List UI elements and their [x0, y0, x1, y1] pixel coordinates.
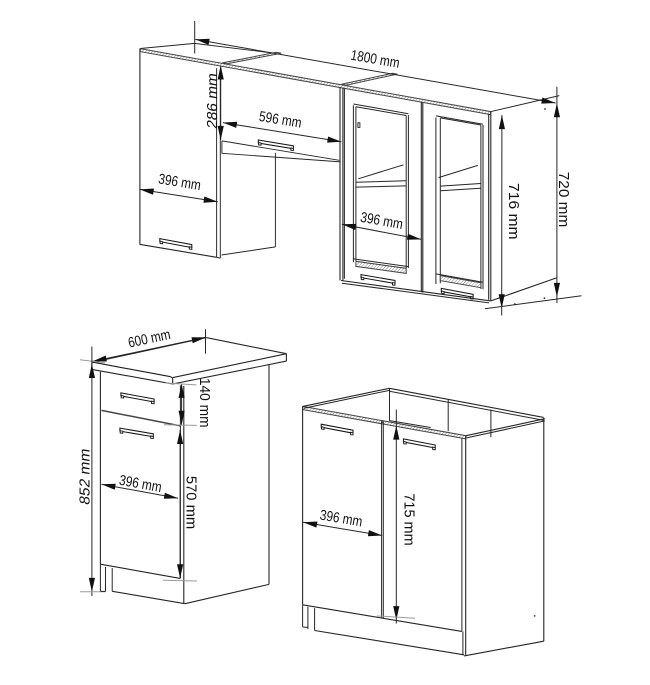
svg-text:720 mm: 720 mm	[555, 172, 571, 228]
svg-text:716 mm: 716 mm	[505, 183, 521, 240]
svg-text:715 mm: 715 mm	[401, 493, 417, 545]
svg-text:852 mm: 852 mm	[77, 447, 93, 506]
svg-text:286 mm: 286 mm	[204, 72, 220, 130]
svg-text:140 mm: 140 mm	[197, 378, 213, 428]
svg-text:570 mm: 570 mm	[183, 476, 199, 529]
